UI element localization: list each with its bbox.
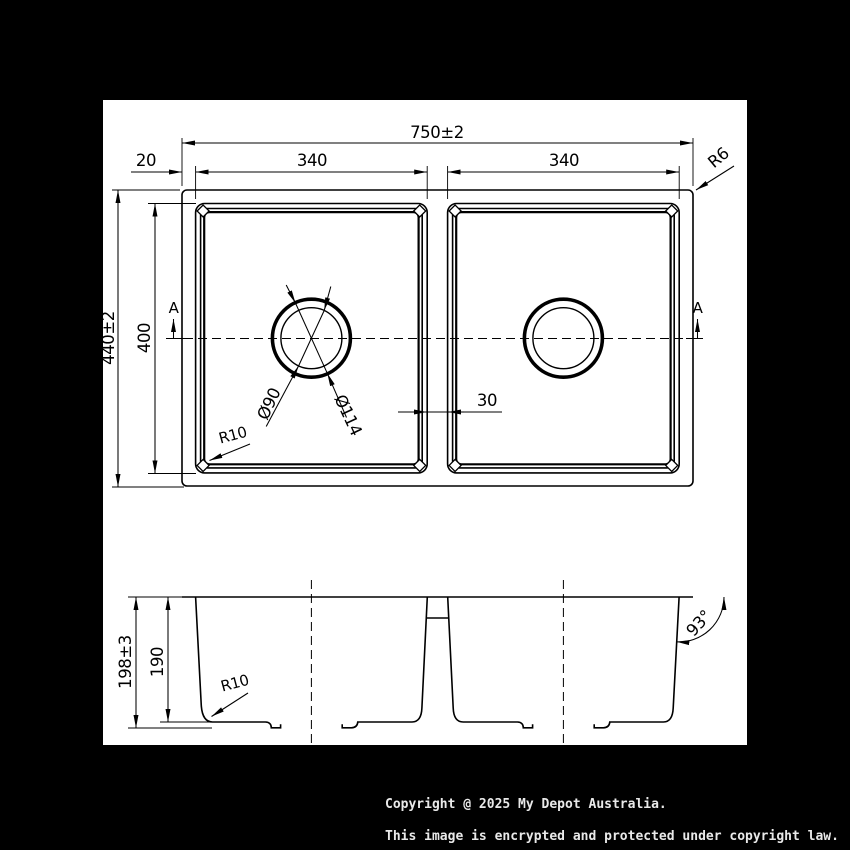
dim-overall-height-label: 198±3 (116, 635, 135, 689)
dim-divider-width-label: 30 (477, 391, 497, 410)
drawing-canvas: A A 750±2 20 (0, 0, 850, 850)
dim-bowl-width-left-label: 340 (297, 151, 327, 170)
dim-overall-width-label: 750±2 (410, 123, 464, 142)
dim-overall-depth-label: 440±2 (99, 311, 118, 365)
copyright-line2: This image is encrypted and protected un… (385, 829, 839, 844)
section-label-right: A (693, 299, 704, 317)
dim-bowl-width-right-label: 340 (549, 151, 579, 170)
section-label-left: A (169, 299, 180, 317)
sink-technical-drawing: A A 750±2 20 (0, 0, 850, 850)
dim-inner-depth-label: 190 (148, 647, 167, 677)
dim-bowl-depth-label: 400 (135, 323, 154, 353)
dim-rim-margin-label: 20 (136, 151, 156, 170)
copyright-line1: Copyright @ 2025 My Depot Australia. (385, 797, 667, 812)
